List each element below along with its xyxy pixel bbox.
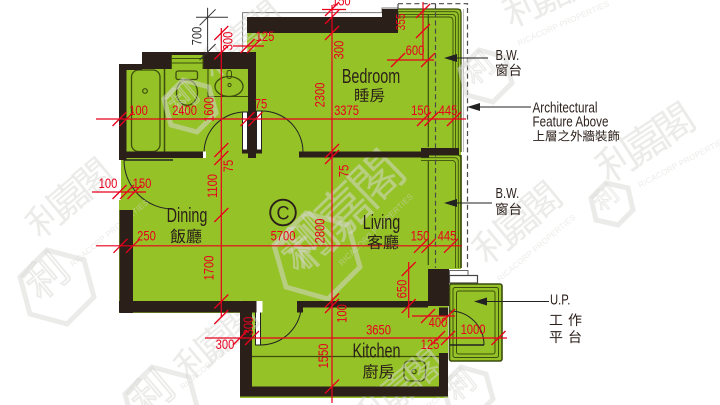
svg-text:100: 100 [129,103,148,118]
svg-text:3375: 3375 [334,103,359,118]
svg-text:300: 300 [216,337,235,352]
svg-text:RICACORP PROPERTIES: RICACORP PROPERTIES [637,135,720,190]
svg-text:3650: 3650 [366,322,391,337]
svg-text:5700: 5700 [271,228,296,243]
svg-text:150: 150 [133,176,152,191]
svg-text:Bedroom: Bedroom [342,65,400,88]
svg-text:2300: 2300 [312,83,327,108]
svg-text:400: 400 [429,315,448,330]
svg-text:C: C [276,202,289,224]
svg-text:150: 150 [332,0,351,9]
svg-text:700: 700 [189,27,204,46]
svg-text:RICACORP PROPERTIES: RICACORP PROPERTIES [516,0,611,48]
svg-text:2400: 2400 [172,103,197,118]
svg-text:Feature Above: Feature Above [533,113,609,130]
svg-text:150: 150 [411,228,430,243]
svg-text:2800: 2800 [312,219,327,244]
svg-text:1100: 1100 [205,174,220,198]
svg-text:355: 355 [395,14,408,31]
svg-text:100: 100 [99,176,118,191]
svg-text:Living: Living [363,211,401,234]
svg-text:1550: 1550 [316,344,331,369]
svg-text:125: 125 [256,29,275,44]
svg-text:Dining: Dining [167,204,208,227]
svg-text:125: 125 [421,337,440,352]
svg-text:1600: 1600 [201,97,216,122]
svg-text:B.W.: B.W. [496,184,520,201]
svg-text:100: 100 [334,304,349,323]
svg-text:445: 445 [438,228,457,243]
svg-text:250: 250 [137,228,156,243]
svg-text:1700: 1700 [201,256,216,281]
svg-text:75: 75 [255,96,267,111]
svg-text:150: 150 [411,103,430,118]
svg-text:445: 445 [439,103,458,118]
svg-text:75: 75 [221,160,236,172]
svg-text:U.P.: U.P. [550,291,570,308]
svg-text:300: 300 [220,32,235,51]
svg-text:B.W.: B.W. [496,46,520,63]
svg-text:75: 75 [336,165,351,177]
svg-text:300: 300 [241,317,256,336]
svg-text:Kitchen: Kitchen [353,339,401,362]
svg-text:650: 650 [394,280,409,299]
svg-text:300: 300 [331,41,346,60]
svg-text:600: 600 [406,43,425,58]
svg-text:1000: 1000 [461,322,486,337]
